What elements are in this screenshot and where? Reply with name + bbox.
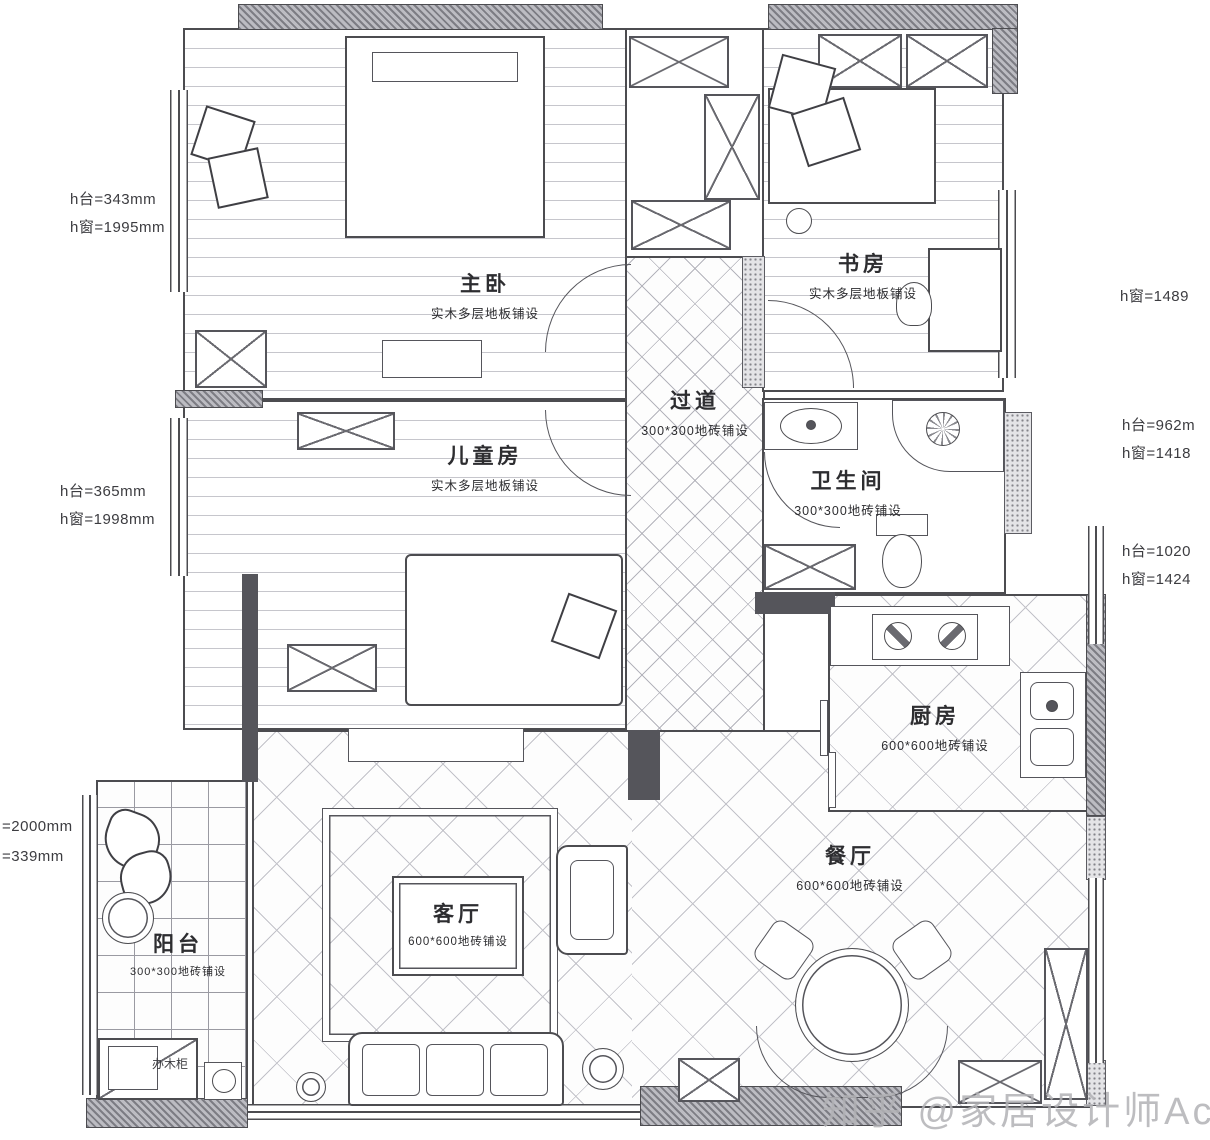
label-corridor: 过道 300*300地砖铺设 <box>628 385 762 439</box>
wall-balcony-bottom <box>86 1098 248 1128</box>
window-kitchen-right <box>1088 526 1104 644</box>
master-bed-pillow <box>372 52 518 82</box>
stove-burner-right <box>938 622 966 650</box>
dim-bottom-left-sill: =339mm <box>2 848 64 865</box>
closet-xbox-top <box>629 36 729 88</box>
dim-bottom-left-window: =2000mm <box>2 818 73 835</box>
sofa-cushion-2 <box>426 1044 484 1096</box>
dining-name: 餐厅 <box>765 840 935 870</box>
label-study: 书房 实木多层地板铺设 <box>778 248 948 302</box>
sofa-cushion-1 <box>362 1044 420 1096</box>
study-name: 书房 <box>778 248 948 278</box>
bathroom-cabinet-xbox <box>764 544 856 590</box>
floorplan-canvas: { "watermark": "知乎 @家居设计师Acc", "colors":… <box>0 0 1210 1140</box>
window-master-left <box>170 90 188 292</box>
label-master: 主卧 实木多层地板铺设 <box>375 268 595 322</box>
living-name: 客厅 <box>390 898 526 928</box>
study-wardrobe-xbox-2 <box>906 34 988 88</box>
balcony-cabinet-label: 办木柜 <box>152 1055 188 1072</box>
dim-right-mid-sill: h台=962m <box>1122 414 1195 435</box>
wall-left-mid <box>175 390 263 408</box>
bathroom-sink-drain <box>806 420 816 430</box>
corridor-floor: 300*300地砖铺设 <box>628 420 762 439</box>
balcony-sink <box>212 1069 236 1093</box>
dim-right-low-window: h窗=1424 <box>1122 568 1191 589</box>
stove-burner-left <box>884 622 912 650</box>
dim-left-mid-window: h窗=1998mm <box>60 508 155 529</box>
wall-top-study <box>768 4 1018 30</box>
wall-corridor-right <box>742 256 765 388</box>
wall-bathroom-right <box>1004 412 1032 534</box>
window-living-bottom <box>248 1104 640 1120</box>
sofa-cushion-3 <box>490 1044 548 1096</box>
floor-lamp-left <box>296 1072 326 1102</box>
dim-left-top-sill: h台=343mm <box>70 188 156 209</box>
bathroom-floor: 300*300地砖铺设 <box>768 500 928 519</box>
window-balcony-left <box>82 795 98 1095</box>
master-deco-pillow-2 <box>207 147 269 209</box>
kitchen-faucet <box>1046 700 1058 712</box>
kitchen-name: 厨房 <box>855 700 1015 730</box>
master-name: 主卧 <box>375 268 595 298</box>
wall-study-right-corner <box>992 28 1018 94</box>
door-kitchen-slide-2 <box>828 752 836 808</box>
balcony-floor: 300*300地砖铺设 <box>108 963 248 979</box>
label-dining: 餐厅 600*600地砖铺设 <box>765 840 935 894</box>
children-name: 儿童房 <box>375 440 595 470</box>
wall-dining-right-upper <box>1086 816 1106 880</box>
wall-top-master <box>238 4 603 30</box>
dim-left-mid-sill: h台=365mm <box>60 480 146 501</box>
label-bathroom: 卫生间 300*300地砖铺设 <box>768 465 928 519</box>
dim-right-top-window: h窗=1489 <box>1120 285 1189 306</box>
balcony-cabinet-inner <box>108 1046 158 1090</box>
master-floor: 实木多层地板铺设 <box>375 303 595 322</box>
closet-xbox-bottom <box>631 200 731 250</box>
kitchen-sink-basin-2 <box>1030 728 1074 766</box>
wall-children-left-lower <box>242 574 258 782</box>
master-cabinet-xbox <box>195 330 267 388</box>
armchair-seat <box>570 860 614 940</box>
wall-bath-kitchen <box>755 592 835 614</box>
dim-right-mid-window: h窗=1418 <box>1122 442 1191 463</box>
floor-lamp-right <box>582 1048 624 1090</box>
wall-living-dining-stub <box>628 730 660 800</box>
study-floor: 实木多层地板铺设 <box>778 283 948 302</box>
watermark-text: 知乎 @家居设计师Acc <box>822 1080 1210 1135</box>
closet-xbox-right <box>704 94 760 200</box>
dim-left-top-window: h窗=1995mm <box>70 216 165 237</box>
label-balcony: 阳台 300*300地砖铺设 <box>108 928 248 979</box>
window-dining-right <box>1088 878 1104 1063</box>
children-cabinet-xbox <box>287 644 377 692</box>
tv-cabinet <box>348 728 524 762</box>
door-kitchen-slide <box>820 700 828 756</box>
bathroom-name: 卫生间 <box>768 465 928 495</box>
children-floor: 实木多层地板铺设 <box>375 475 595 494</box>
dining-xbox-right-tall <box>1044 948 1088 1100</box>
dim-right-low-sill: h台=1020 <box>1122 540 1191 561</box>
label-living: 客厅 600*600地砖铺设 <box>390 898 526 949</box>
master-bench <box>382 340 482 378</box>
kitchen-floor: 600*600地砖铺设 <box>855 735 1015 754</box>
living-floor: 600*600地砖铺设 <box>390 933 526 949</box>
dining-floor: 600*600地砖铺设 <box>765 875 935 894</box>
label-kitchen: 厨房 600*600地砖铺设 <box>855 700 1015 754</box>
balcony-name: 阳台 <box>108 928 248 958</box>
shower-head <box>926 412 960 446</box>
study-lamp <box>786 208 812 234</box>
corridor-name: 过道 <box>628 385 762 415</box>
window-children-left <box>170 418 188 576</box>
dining-xbox-left-small <box>678 1058 740 1102</box>
toilet-bowl <box>882 534 922 588</box>
label-children: 儿童房 实木多层地板铺设 <box>375 440 595 494</box>
